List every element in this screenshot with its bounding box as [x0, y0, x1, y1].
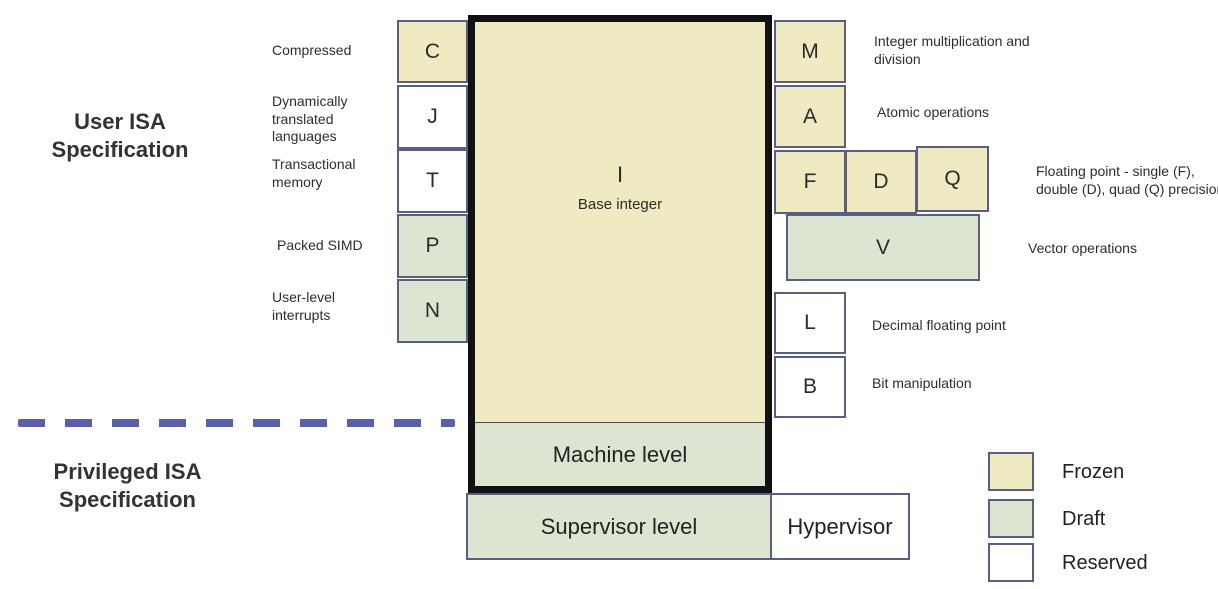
- ext-letter-d: D: [873, 170, 888, 194]
- ext-letter-p: P: [425, 234, 439, 258]
- ext-letter-j: J: [427, 105, 438, 129]
- user-isa-heading: User ISA Specification: [40, 108, 200, 163]
- ext-box-a: A: [774, 85, 846, 148]
- ext-box-b: B: [774, 356, 846, 418]
- ext-letter-a: A: [803, 105, 817, 129]
- label-bit-manipulation: Bit manipulation: [872, 375, 972, 393]
- ext-box-t: T: [397, 149, 468, 213]
- label-compressed: Compressed: [272, 42, 351, 60]
- user-privileged-divider: [18, 419, 455, 427]
- ext-box-q: Q: [916, 146, 989, 212]
- ext-letter-b: B: [803, 375, 817, 399]
- legend-swatch-frozen: [988, 452, 1034, 491]
- ext-letter-l: L: [804, 311, 816, 335]
- risc-v-isa-diagram: User ISA Specification Privileged ISA Sp…: [0, 0, 1218, 589]
- privileged-isa-heading: Privileged ISA Specification: [40, 458, 215, 513]
- label-decimal-floating-point: Decimal floating point: [872, 317, 1006, 335]
- ext-letter-c: C: [425, 40, 440, 64]
- ext-letter-f: F: [804, 170, 817, 194]
- ext-box-d: D: [845, 150, 917, 214]
- ext-letter-m: M: [801, 40, 819, 64]
- ext-box-v: V: [786, 214, 980, 281]
- label-vector-operations: Vector operations: [1028, 240, 1137, 258]
- ext-letter-t: T: [426, 169, 439, 193]
- label-packed-simd: Packed SIMD: [277, 237, 363, 255]
- label-atomic-operations: Atomic operations: [877, 104, 989, 122]
- ext-box-j: J: [397, 85, 468, 149]
- supervisor-level-box: Supervisor level: [466, 493, 772, 560]
- base-integer-box: I Base integer: [475, 22, 765, 422]
- ext-letter-q: Q: [944, 167, 960, 191]
- legend-swatch-reserved: [988, 543, 1034, 582]
- ext-letter-n: N: [425, 299, 440, 323]
- label-transactional-memory: Transactional memory: [272, 156, 382, 191]
- ext-box-l: L: [774, 292, 846, 354]
- legend-label-draft: Draft: [1062, 508, 1105, 531]
- label-floating-point: Floating point - single (F), double (D),…: [1036, 163, 1218, 198]
- ext-box-p: P: [397, 214, 468, 278]
- legend-label-reserved: Reserved: [1062, 552, 1148, 575]
- ext-box-n: N: [397, 279, 468, 343]
- base-integer-frame: I Base integer Machine level: [468, 15, 772, 493]
- legend-swatch-draft: [988, 499, 1034, 538]
- ext-box-c: C: [397, 20, 468, 83]
- hypervisor-box: Hypervisor: [770, 493, 910, 560]
- ext-letter-v: V: [876, 236, 890, 260]
- base-integer-letter: I: [617, 162, 623, 188]
- label-dynamically-translated: Dynamically translated languages: [272, 93, 364, 146]
- label-integer-multiplication: Integer multiplication and division: [874, 33, 1034, 68]
- base-integer-name: Base integer: [578, 196, 662, 213]
- machine-level-box: Machine level: [475, 422, 765, 486]
- ext-box-f: F: [774, 150, 846, 214]
- legend-label-frozen: Frozen: [1062, 461, 1124, 484]
- label-user-level-interrupts: User-level interrupts: [272, 289, 357, 324]
- ext-box-m: M: [774, 20, 846, 83]
